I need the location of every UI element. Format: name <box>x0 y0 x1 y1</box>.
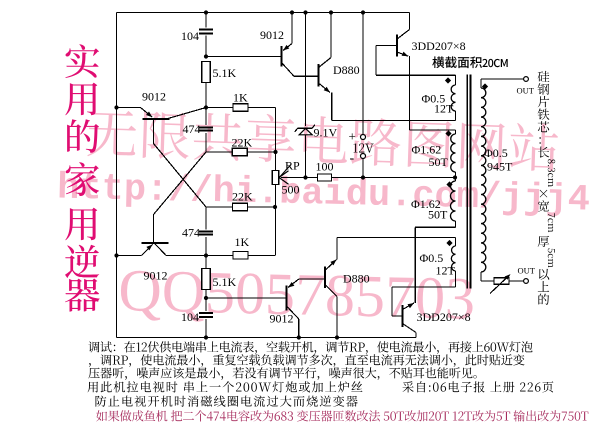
svg-text:9.1V: 9.1V <box>314 126 338 140</box>
svg-text:-: - <box>350 151 355 166</box>
svg-text:104: 104 <box>181 310 199 324</box>
svg-text:3DD207×8: 3DD207×8 <box>412 39 466 53</box>
svg-text:D880: D880 <box>343 272 370 286</box>
svg-text:945T: 945T <box>487 160 513 174</box>
svg-text:474: 474 <box>183 122 201 136</box>
svg-text:5.1K: 5.1K <box>213 275 237 289</box>
svg-text:D880: D880 <box>333 63 360 77</box>
svg-text:OUT: OUT <box>517 86 535 96</box>
svg-text:1K: 1K <box>233 91 248 105</box>
svg-text:104: 104 <box>181 29 199 43</box>
svg-text:5.1K: 5.1K <box>213 66 237 80</box>
svg-text:+: + <box>349 129 356 144</box>
svg-text:100: 100 <box>316 160 334 174</box>
svg-text:12T: 12T <box>434 102 454 116</box>
svg-text:1K: 1K <box>235 235 250 249</box>
svg-text:9012: 9012 <box>270 312 294 326</box>
svg-text:RP: RP <box>285 159 300 173</box>
svg-text:9012: 9012 <box>144 269 168 283</box>
svg-text:500: 500 <box>282 183 300 197</box>
svg-text:Φ0.5: Φ0.5 <box>484 146 508 160</box>
svg-text:50T: 50T <box>428 208 448 222</box>
svg-text:OUT: OUT <box>518 266 536 276</box>
svg-text:9012: 9012 <box>260 28 284 42</box>
svg-text:50T: 50T <box>429 155 449 169</box>
svg-text:22K: 22K <box>232 136 253 150</box>
svg-text:474: 474 <box>182 226 200 240</box>
svg-text:9012: 9012 <box>142 90 166 104</box>
svg-text:22K: 22K <box>232 190 253 204</box>
svg-text:3DD207×8: 3DD207×8 <box>417 310 471 324</box>
svg-text:12T: 12T <box>436 264 456 278</box>
